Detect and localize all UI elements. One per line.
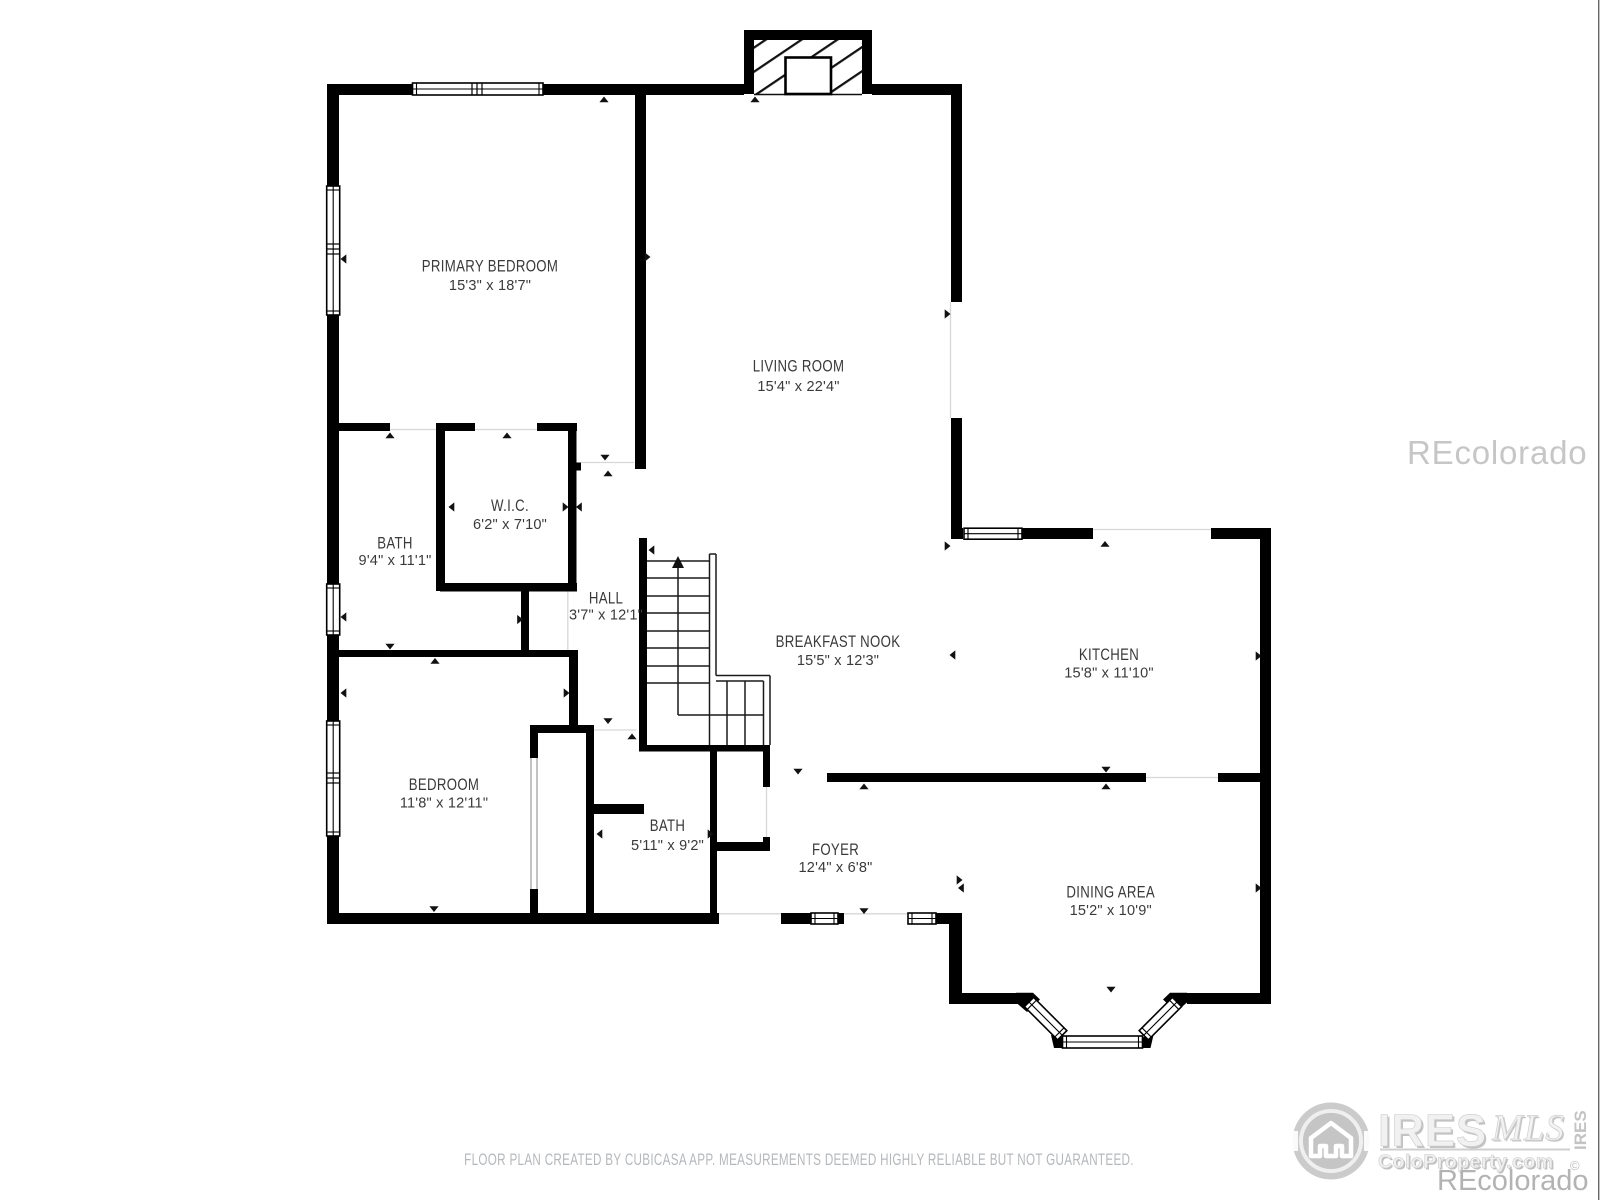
- svg-text:LIVING ROOM: LIVING ROOM: [753, 358, 845, 376]
- svg-text:6'2" x 7'10": 6'2" x 7'10": [473, 517, 547, 533]
- svg-text:IRES: IRES: [1571, 1110, 1590, 1150]
- svg-text:W.I.C.: W.I.C.: [491, 498, 529, 516]
- svg-text:BATH: BATH: [650, 818, 686, 836]
- svg-text:15'4" x 22'4": 15'4" x 22'4": [757, 379, 839, 395]
- svg-text:IRES: IRES: [1378, 1105, 1487, 1156]
- svg-text:BEDROOM: BEDROOM: [409, 777, 480, 795]
- svg-text:REcolorado: REcolorado: [1407, 434, 1587, 471]
- svg-text:BATH: BATH: [377, 535, 413, 553]
- svg-text:15'8" x 11'10": 15'8" x 11'10": [1064, 665, 1153, 681]
- svg-text:9'4" x 11'1": 9'4" x 11'1": [359, 553, 432, 569]
- svg-text:DINING AREA: DINING AREA: [1066, 884, 1155, 902]
- svg-text:15'5" x 12'3": 15'5" x 12'3": [797, 653, 879, 669]
- svg-text:REcolorado: REcolorado: [1437, 1165, 1589, 1197]
- svg-text:12'4" x 6'8": 12'4" x 6'8": [799, 860, 873, 876]
- svg-text:KITCHEN: KITCHEN: [1079, 647, 1139, 665]
- svg-text:FOYER: FOYER: [812, 842, 859, 860]
- svg-text:11'8" x 12'11": 11'8" x 12'11": [400, 795, 488, 811]
- svg-text:3'7" x 12'1": 3'7" x 12'1": [569, 607, 643, 623]
- svg-text:MLS: MLS: [1491, 1108, 1565, 1149]
- svg-text:BREAKFAST NOOK: BREAKFAST NOOK: [776, 634, 901, 652]
- svg-text:15'3" x 18'7": 15'3" x 18'7": [449, 278, 531, 294]
- svg-text:©: ©: [1570, 1158, 1580, 1173]
- svg-text:FLOOR PLAN CREATED BY CUBICASA: FLOOR PLAN CREATED BY CUBICASA APP. MEAS…: [464, 1151, 1134, 1170]
- svg-text:5'11" x 9'2": 5'11" x 9'2": [631, 838, 704, 854]
- svg-text:PRIMARY BEDROOM: PRIMARY BEDROOM: [422, 258, 558, 276]
- svg-text:15'2" x 10'9": 15'2" x 10'9": [1070, 903, 1152, 919]
- svg-text:HALL: HALL: [589, 590, 623, 608]
